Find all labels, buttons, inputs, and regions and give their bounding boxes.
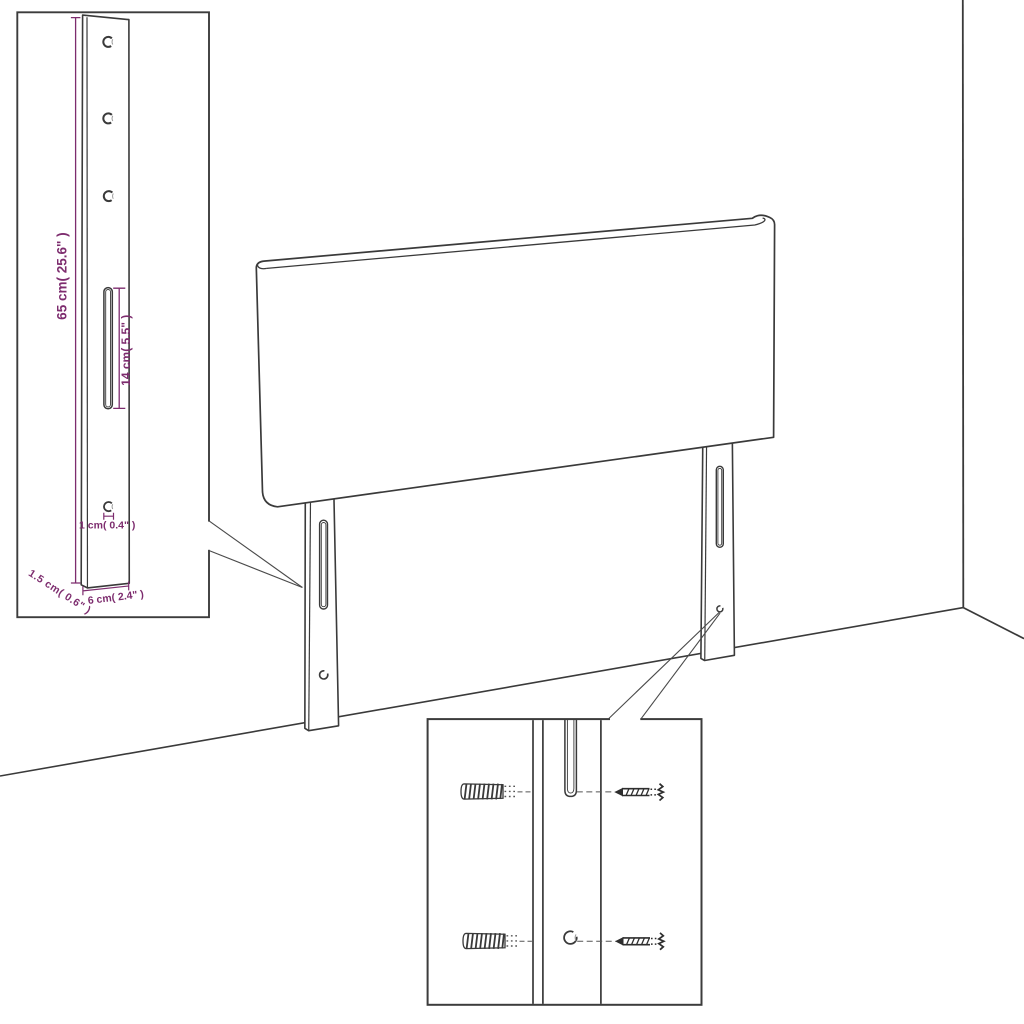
svg-text:1 cm( 0.4" ): 1 cm( 0.4" ) — [79, 520, 135, 532]
svg-text:65 cm( 25.6" ): 65 cm( 25.6" ) — [55, 232, 70, 319]
svg-text:14 cm( 5.5" ): 14 cm( 5.5" ) — [119, 315, 133, 386]
